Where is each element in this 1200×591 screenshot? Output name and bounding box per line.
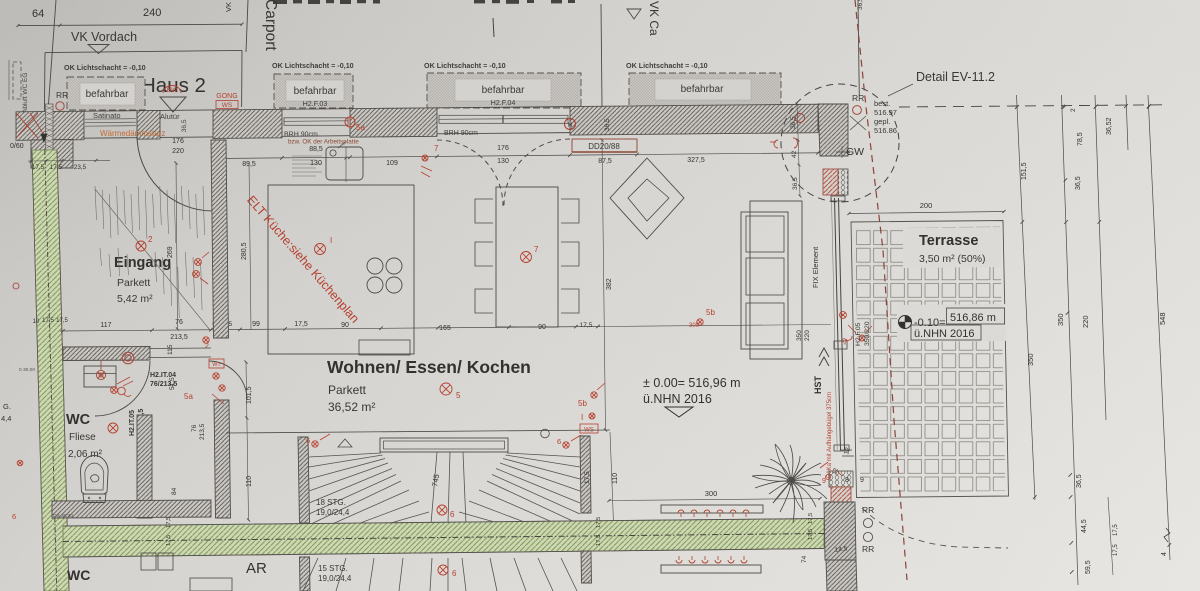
svg-text:130: 130 bbox=[310, 160, 322, 167]
svg-text:17,5: 17,5 bbox=[50, 164, 63, 171]
svg-text:59,5: 59,5 bbox=[1085, 560, 1092, 574]
svg-text:befahrbar: befahrbar bbox=[482, 85, 525, 96]
svg-text:84: 84 bbox=[171, 487, 178, 495]
svg-text:350: 350 bbox=[796, 330, 803, 341]
svg-text:516,86 m: 516,86 m bbox=[950, 312, 996, 324]
svg-text:19,0/24,4: 19,0/24,4 bbox=[318, 574, 352, 583]
svg-text:ü.NHN 2016: ü.NHN 2016 bbox=[914, 328, 975, 340]
svg-text:90: 90 bbox=[341, 322, 349, 329]
svg-text:Satinato: Satinato bbox=[93, 111, 121, 120]
svg-text:115: 115 bbox=[167, 344, 174, 355]
svg-text:17,5: 17,5 bbox=[294, 321, 308, 328]
svg-text:23,5: 23,5 bbox=[74, 164, 87, 171]
svg-text:RöKa mit Aufhängebügel 375cm: RöKa mit Aufhängebügel 375cm bbox=[827, 392, 833, 478]
svg-text:17,5: 17,5 bbox=[56, 318, 68, 324]
svg-text:5b: 5b bbox=[578, 399, 587, 408]
svg-text:Wärmedämmsturz: Wärmedämmsturz bbox=[100, 129, 165, 138]
svg-text:2: 2 bbox=[148, 235, 153, 244]
svg-text:36,52 m²: 36,52 m² bbox=[328, 400, 375, 414]
svg-text:BRH 90cm: BRH 90cm bbox=[284, 132, 318, 139]
svg-text:17,5: 17,5 bbox=[596, 535, 602, 546]
svg-text:88,5: 88,5 bbox=[309, 146, 323, 153]
svg-text:BRH 90cm: BRH 90cm bbox=[444, 130, 478, 137]
svg-text:0 30,00: 0 30,00 bbox=[19, 367, 35, 373]
svg-text:I: I bbox=[581, 413, 583, 422]
svg-text:VK Ca: VK Ca bbox=[647, 1, 661, 36]
svg-text:17,5: 17,5 bbox=[596, 517, 602, 528]
svg-text:213,5: 213,5 bbox=[170, 334, 188, 341]
svg-text:51,5: 51,5 bbox=[169, 377, 176, 390]
svg-text:befahrbar: befahrbar bbox=[681, 84, 724, 95]
svg-text:HST: HST bbox=[813, 375, 823, 394]
svg-text:300: 300 bbox=[705, 489, 718, 498]
svg-text:78,5: 78,5 bbox=[1077, 132, 1084, 146]
svg-text:bzw. OK der Arbeitsplatte: bzw. OK der Arbeitsplatte bbox=[288, 139, 359, 146]
svg-text:165: 165 bbox=[439, 325, 451, 332]
svg-text:I: I bbox=[330, 236, 332, 245]
svg-text:213,5: 213,5 bbox=[199, 423, 206, 440]
svg-text:516.86: 516.86 bbox=[874, 126, 897, 135]
svg-text:42: 42 bbox=[791, 150, 798, 158]
svg-text:RR: RR bbox=[852, 93, 864, 103]
svg-text:220: 220 bbox=[804, 330, 811, 341]
svg-text:17,5: 17,5 bbox=[166, 517, 172, 528]
svg-text:6: 6 bbox=[452, 569, 457, 578]
svg-text:OK Lichtschacht = -0,10: OK Lichtschacht = -0,10 bbox=[272, 61, 354, 70]
svg-text:90: 90 bbox=[538, 324, 546, 331]
svg-text:17,5: 17,5 bbox=[1113, 544, 1119, 556]
svg-text:OK Lichtschacht = -0,10: OK Lichtschacht = -0,10 bbox=[626, 61, 708, 70]
svg-text:17,5: 17,5 bbox=[166, 535, 172, 546]
svg-text:516.97: 516.97 bbox=[874, 108, 897, 117]
svg-text:7: 7 bbox=[534, 245, 539, 254]
svg-text:GW: GW bbox=[846, 146, 864, 158]
svg-text:4,4: 4,4 bbox=[1, 414, 11, 423]
svg-text:Wohnen/ Essen/ Kochen: Wohnen/ Essen/ Kochen bbox=[327, 357, 531, 377]
svg-text:17,5: 17,5 bbox=[808, 529, 814, 540]
svg-text:176: 176 bbox=[172, 138, 184, 145]
svg-text:220: 220 bbox=[1081, 315, 1090, 328]
svg-text:382: 382 bbox=[606, 278, 613, 290]
svg-text:5a: 5a bbox=[184, 392, 193, 401]
svg-text:19,0/24,4: 19,0/24,4 bbox=[316, 508, 350, 517]
svg-text:DB 30/30: DB 30/30 bbox=[53, 513, 73, 519]
svg-text:110: 110 bbox=[246, 476, 253, 487]
svg-text:200: 200 bbox=[920, 201, 933, 210]
svg-text:36,5: 36,5 bbox=[181, 119, 188, 132]
svg-text:269: 269 bbox=[167, 246, 174, 258]
svg-text:FIX Element: FIX Element bbox=[811, 246, 820, 288]
svg-text:RR: RR bbox=[56, 90, 68, 100]
svg-text:BW: BW bbox=[167, 87, 178, 94]
svg-text:OK Lichtschacht = -0,10: OK Lichtschacht = -0,10 bbox=[424, 61, 506, 70]
svg-text:64: 64 bbox=[32, 8, 44, 20]
svg-text:18 STG.: 18 STG. bbox=[316, 498, 346, 507]
svg-text:VK: VK bbox=[224, 2, 233, 12]
svg-text:99: 99 bbox=[252, 321, 260, 328]
svg-text:17,5: 17,5 bbox=[1113, 524, 1119, 536]
svg-text:4: 4 bbox=[1161, 552, 1168, 556]
svg-text:76: 76 bbox=[175, 319, 183, 326]
svg-text:5: 5 bbox=[456, 391, 461, 400]
svg-text:22: 22 bbox=[841, 337, 849, 346]
svg-text:130: 130 bbox=[497, 158, 509, 165]
svg-text:5a: 5a bbox=[356, 123, 365, 132]
svg-text:280,5: 280,5 bbox=[241, 242, 248, 260]
svg-text:best.: best. bbox=[874, 99, 890, 108]
svg-text:220: 220 bbox=[172, 148, 184, 155]
svg-text:WS: WS bbox=[584, 428, 594, 434]
svg-text:8: 8 bbox=[845, 477, 849, 484]
svg-text:6: 6 bbox=[306, 436, 310, 445]
svg-text:± 0.00= 516,96 m: ± 0.00= 516,96 m bbox=[643, 376, 741, 390]
svg-text:9: 9 bbox=[822, 478, 826, 485]
svg-text:WC: WC bbox=[66, 412, 91, 428]
svg-text:109: 109 bbox=[386, 160, 398, 167]
svg-text:7: 7 bbox=[434, 144, 439, 153]
svg-text:befahrbar: befahrbar bbox=[294, 86, 337, 97]
svg-text:Alutür: Alutür bbox=[160, 112, 180, 121]
svg-text:17,5: 17,5 bbox=[32, 164, 45, 171]
svg-text:DD20/88: DD20/88 bbox=[588, 142, 620, 151]
svg-text:110: 110 bbox=[612, 473, 619, 484]
svg-text:74: 74 bbox=[801, 555, 808, 563]
svg-text:36,5: 36,5 bbox=[604, 118, 611, 131]
svg-text:ELT Küche:siehe Küchenplan: ELT Küche:siehe Küchenplan bbox=[244, 193, 362, 326]
svg-text:WS: WS bbox=[222, 102, 233, 109]
svg-text:Detail EV-11.2: Detail EV-11.2 bbox=[916, 70, 995, 84]
svg-text:76: 76 bbox=[191, 424, 198, 432]
svg-text:Terrasse: Terrasse bbox=[919, 233, 978, 249]
svg-text:6: 6 bbox=[12, 512, 16, 521]
svg-text:6: 6 bbox=[450, 510, 455, 519]
svg-text:117: 117 bbox=[100, 322, 111, 329]
svg-text:VK Vordach: VK Vordach bbox=[71, 30, 137, 44]
svg-text:36,5: 36,5 bbox=[1075, 176, 1082, 190]
svg-text:17,5: 17,5 bbox=[580, 322, 593, 329]
svg-text:Carport: Carport bbox=[262, 0, 279, 51]
svg-text:3,50 m² (50%): 3,50 m² (50%) bbox=[919, 253, 986, 265]
svg-text:5b: 5b bbox=[706, 308, 715, 317]
svg-text:350/220: 350/220 bbox=[864, 321, 871, 346]
svg-text:300: 300 bbox=[689, 323, 700, 329]
svg-text:15 STG.: 15 STG. bbox=[318, 564, 348, 573]
svg-text:WC: WC bbox=[67, 567, 90, 583]
svg-text:H2.F.04: H2.F.04 bbox=[491, 98, 516, 107]
svg-text:12: 12 bbox=[843, 446, 852, 455]
svg-text:Parkett: Parkett bbox=[117, 277, 150, 289]
svg-text:17,5: 17,5 bbox=[808, 513, 814, 524]
svg-text:5,42 m²: 5,42 m² bbox=[117, 293, 153, 305]
svg-text:H2.IT.05: H2.IT.05 bbox=[129, 410, 136, 436]
svg-text:gepl.: gepl. bbox=[874, 117, 890, 126]
svg-text:151,5: 151,5 bbox=[1021, 162, 1028, 180]
svg-text:M: M bbox=[568, 123, 573, 129]
svg-text:H2.F.03: H2.F.03 bbox=[303, 99, 328, 108]
svg-text:240: 240 bbox=[143, 7, 161, 19]
svg-text:GONG: GONG bbox=[216, 93, 237, 100]
svg-text:2,06 m²: 2,06 m² bbox=[68, 449, 103, 460]
svg-text:36,5: 36,5 bbox=[790, 116, 797, 129]
svg-text:101,5: 101,5 bbox=[246, 386, 253, 404]
svg-text:350: 350 bbox=[1026, 353, 1035, 366]
svg-text:36,5: 36,5 bbox=[1076, 474, 1083, 488]
svg-text:OK Lichtschacht = -0,10: OK Lichtschacht = -0,10 bbox=[64, 63, 146, 72]
svg-text:befahrbar: befahrbar bbox=[86, 89, 129, 100]
svg-text:87,5: 87,5 bbox=[598, 158, 612, 165]
svg-text:Abluft WC EG: Abluft WC EG bbox=[22, 73, 29, 113]
svg-text:Parkett: Parkett bbox=[328, 383, 367, 397]
svg-text:36,52: 36,52 bbox=[1106, 117, 1113, 135]
svg-text:36,5: 36,5 bbox=[857, 0, 864, 10]
svg-text:176: 176 bbox=[497, 145, 509, 152]
svg-text:17,5: 17,5 bbox=[42, 318, 54, 324]
svg-text:2: 2 bbox=[205, 343, 209, 350]
svg-text:327,5: 327,5 bbox=[687, 157, 705, 164]
svg-text:0/60: 0/60 bbox=[10, 143, 24, 150]
svg-text:44,5: 44,5 bbox=[1081, 519, 1088, 533]
svg-text:548: 548 bbox=[1158, 312, 1167, 325]
svg-text:RR: RR bbox=[862, 544, 874, 554]
svg-text:G.: G. bbox=[3, 402, 11, 411]
svg-text:6: 6 bbox=[557, 437, 561, 446]
svg-text:745: 745 bbox=[430, 473, 441, 487]
svg-text:2: 2 bbox=[1070, 108, 1077, 112]
svg-text:ü.NHN 2016: ü.NHN 2016 bbox=[643, 392, 712, 406]
svg-text:Fliese: Fliese bbox=[69, 432, 96, 443]
svg-text:17,5: 17,5 bbox=[584, 471, 591, 484]
svg-text:WT: WT bbox=[212, 362, 221, 368]
svg-text:AR: AR bbox=[246, 560, 267, 577]
svg-text:10: 10 bbox=[33, 319, 40, 325]
svg-text:H2.F.05: H2.F.05 bbox=[855, 322, 862, 346]
svg-text:350: 350 bbox=[1056, 313, 1065, 326]
